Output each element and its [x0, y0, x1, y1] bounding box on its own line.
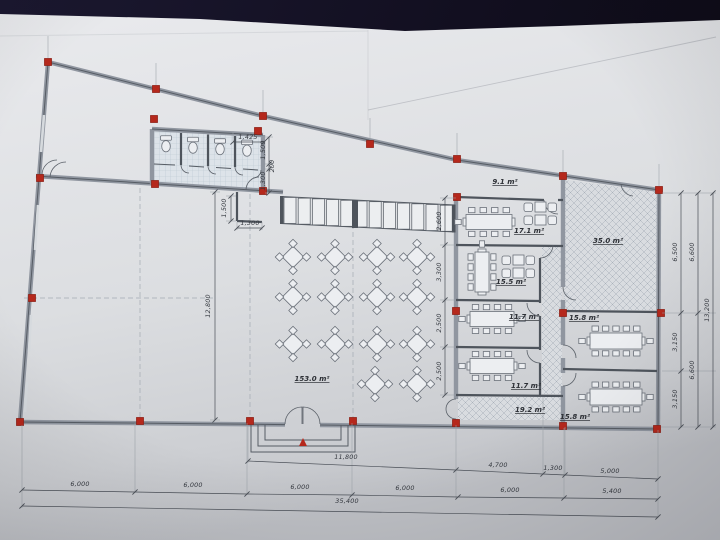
- chair: [592, 407, 598, 412]
- dim-bay-2: 6,000: [290, 483, 309, 491]
- corridor-hatch: [542, 247, 562, 394]
- column-marker-icon: [453, 193, 460, 200]
- room-label-open-room: 35.0 m²: [593, 237, 624, 245]
- dim-right-inner-2: 3,150: [671, 389, 679, 408]
- window-post: [452, 205, 456, 233]
- dim-bottom-upper-2: 1,300: [543, 464, 562, 472]
- chair: [492, 208, 498, 213]
- room-label-office-lower: 11.7 m²: [511, 382, 542, 390]
- armchair: [524, 203, 533, 212]
- chair: [602, 382, 608, 387]
- chair: [492, 231, 498, 236]
- dim-right-inner-0: 6,500: [671, 242, 679, 261]
- column-marker-icon: [151, 180, 158, 187]
- chair: [623, 326, 629, 331]
- dim-hall-height: 12,800: [204, 294, 212, 318]
- chair: [503, 208, 509, 213]
- chair: [472, 375, 478, 380]
- chair: [468, 284, 473, 290]
- window-pane: [412, 204, 424, 230]
- dim-bottom-total: 35,400: [335, 497, 359, 505]
- column-marker-icon: [559, 422, 566, 429]
- chair: [479, 241, 484, 247]
- column-marker-icon: [150, 115, 157, 122]
- table-end: [512, 218, 515, 226]
- dim-bottom-upper-3: 5,000: [600, 467, 619, 475]
- dim-notch-width: 1,300: [240, 219, 259, 227]
- dim-bay-0: 6,000: [70, 480, 89, 488]
- table-end: [467, 362, 470, 370]
- toilet-icon: [161, 136, 172, 152]
- dim-right-total: 13,200: [703, 298, 711, 322]
- chair: [468, 254, 473, 260]
- chair: [483, 328, 489, 333]
- table-top: [590, 389, 642, 405]
- column-marker-icon: [653, 425, 660, 432]
- armchair: [526, 269, 535, 278]
- table-end: [463, 218, 466, 226]
- column-marker-icon: [452, 307, 459, 314]
- column-marker-icon: [559, 309, 566, 316]
- wall-11b-corridor: [456, 395, 563, 396]
- column-marker-icon: [28, 294, 35, 301]
- column-marker-icon: [152, 85, 159, 92]
- room-label-lounge: 15.5 m²: [496, 278, 527, 286]
- column-marker-icon: [453, 155, 460, 162]
- chair: [459, 363, 465, 368]
- room-label-corridor: 19.2 m²: [515, 406, 546, 414]
- chair: [468, 274, 473, 280]
- dim-bottom-upper-1: 4,700: [488, 461, 507, 469]
- chair: [469, 231, 475, 236]
- chair: [494, 328, 500, 333]
- chair: [634, 351, 640, 356]
- armchair: [548, 216, 557, 225]
- armchair: [502, 256, 511, 265]
- window-pane: [341, 200, 353, 226]
- room-label-dining-hall: 153.0 m²: [295, 375, 331, 383]
- armchair: [526, 256, 535, 265]
- side-table: [535, 215, 546, 225]
- dim-right-mid-1: 6,600: [688, 360, 696, 379]
- chair: [503, 231, 509, 236]
- table-top: [470, 312, 514, 327]
- chair: [483, 305, 489, 310]
- chair: [491, 264, 496, 270]
- wall-17-15: [456, 245, 563, 246]
- toilet-icon: [188, 137, 199, 153]
- dim-wc-1300: 1,300: [259, 171, 267, 190]
- column-marker-icon: [136, 417, 143, 424]
- window-pane: [398, 203, 410, 229]
- wall-11a-11b: [456, 347, 540, 348]
- dim-office-col-3: 2,500: [435, 361, 443, 380]
- chair: [491, 254, 496, 260]
- chair: [634, 407, 640, 412]
- chair: [579, 394, 585, 399]
- dim-bay-1: 6,000: [183, 481, 202, 489]
- chair: [494, 305, 500, 310]
- column-marker-icon: [16, 418, 23, 425]
- chair: [592, 382, 598, 387]
- column-marker-icon: [366, 140, 373, 147]
- window-pane: [284, 197, 296, 223]
- chair: [592, 326, 598, 331]
- chair: [634, 326, 640, 331]
- table-end: [642, 337, 645, 345]
- side-table: [513, 255, 524, 265]
- column-marker-icon: [559, 172, 566, 179]
- chair: [647, 394, 653, 399]
- chair: [647, 338, 653, 343]
- armchair: [502, 269, 511, 278]
- dim-office-col-0: 2,600: [435, 211, 443, 230]
- armchair: [524, 216, 533, 225]
- chair: [613, 351, 619, 356]
- window-pane: [312, 199, 324, 225]
- chair: [613, 407, 619, 412]
- room-label-office-upper: 11.7 m²: [509, 313, 540, 321]
- floor-plan-drawing: 1,425 1,500 200 1,300 1,500 1,300 12,800…: [0, 0, 720, 540]
- chair: [455, 219, 461, 224]
- chair: [505, 375, 511, 380]
- chair: [483, 352, 489, 357]
- corridor-hatch-bottom: [458, 397, 562, 420]
- chair: [472, 305, 478, 310]
- chair: [602, 407, 608, 412]
- dim-wc-1500: 1,500: [259, 140, 267, 159]
- chair: [505, 305, 511, 310]
- chair: [613, 382, 619, 387]
- chair: [592, 351, 598, 356]
- chair: [613, 326, 619, 331]
- table-end: [642, 393, 645, 401]
- dim-wc-width: 1,425: [238, 133, 257, 141]
- dim-wc-200: 200: [268, 160, 276, 173]
- toilet-icon: [242, 140, 253, 156]
- chair: [494, 352, 500, 357]
- chair: [623, 382, 629, 387]
- wall-15-11a: [456, 300, 540, 301]
- chair: [469, 208, 475, 213]
- column-marker-icon: [259, 112, 266, 119]
- chair: [494, 375, 500, 380]
- window-pane: [298, 198, 310, 224]
- column-marker-icon: [655, 186, 662, 193]
- chair: [459, 316, 465, 321]
- floor-plan-photo: 1,425 1,500 200 1,300 1,500 1,300 12,800…: [0, 0, 720, 540]
- column-marker-icon: [36, 174, 43, 181]
- chair: [480, 231, 486, 236]
- table-top: [590, 333, 642, 349]
- room-label-terrace: 9.1 m²: [492, 178, 518, 186]
- chair: [623, 351, 629, 356]
- chair: [483, 375, 489, 380]
- dim-bay-3: 6,000: [395, 484, 414, 492]
- table-end: [467, 315, 470, 323]
- table-top: [475, 252, 489, 292]
- table-end: [514, 362, 517, 370]
- window-pane: [369, 202, 381, 228]
- dim-office-col-1: 3,300: [435, 262, 443, 281]
- chair: [472, 352, 478, 357]
- chair: [480, 208, 486, 213]
- armchair: [548, 203, 557, 212]
- table-top: [470, 359, 514, 374]
- chair: [623, 407, 629, 412]
- window-post: [352, 200, 358, 228]
- chair: [602, 351, 608, 356]
- side-table: [535, 202, 546, 212]
- dim-right-mid-0: 6,600: [688, 242, 696, 261]
- dim-bottom-upper-0: 11,800: [334, 453, 358, 461]
- room-label-right-lower: 15.8 m²: [560, 413, 591, 421]
- open-room-hatch: [564, 180, 657, 310]
- window-pane: [327, 200, 339, 226]
- table-end: [478, 249, 486, 252]
- dim-right-inner-1: 3,150: [671, 332, 679, 351]
- room-label-meeting: 17.1 m²: [514, 227, 545, 235]
- table-end: [478, 292, 486, 295]
- table-end: [587, 393, 590, 401]
- window-post: [280, 196, 284, 224]
- side-table: [513, 268, 524, 278]
- table-top: [466, 215, 512, 230]
- dim-bay-4: 6,000: [500, 486, 519, 494]
- chair: [505, 352, 511, 357]
- chair: [472, 328, 478, 333]
- chair: [468, 264, 473, 270]
- column-marker-icon: [349, 417, 356, 424]
- dim-office-col-2: 2,500: [435, 313, 443, 332]
- wall-35-158a: [563, 311, 657, 312]
- column-marker-icon: [44, 58, 51, 65]
- room-label-right-upper: 15.8 m²: [569, 314, 600, 322]
- window-pane: [383, 202, 395, 228]
- table-end: [587, 337, 590, 345]
- chair: [579, 338, 585, 343]
- chair: [505, 328, 511, 333]
- dim-bay-5: 5,400: [602, 487, 621, 495]
- chair: [602, 326, 608, 331]
- column-marker-icon: [246, 417, 253, 424]
- chair: [634, 382, 640, 387]
- toilet-icon: [215, 139, 226, 155]
- chair: [519, 363, 525, 368]
- dim-notch-height: 1,500: [220, 198, 228, 217]
